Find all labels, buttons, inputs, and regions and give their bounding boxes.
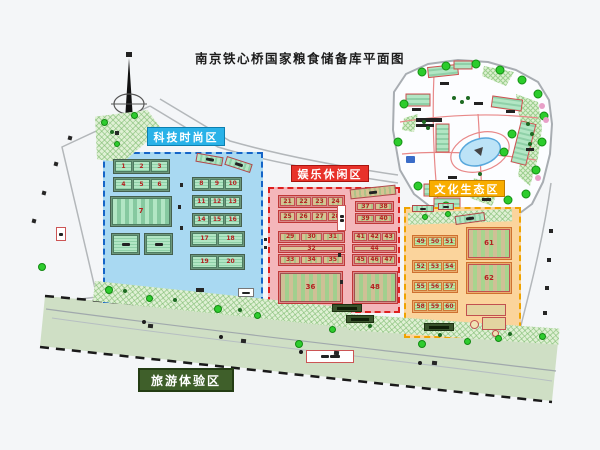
building: 20 (218, 256, 243, 268)
label-chip (238, 288, 254, 297)
building: 23 (312, 197, 327, 206)
bush-icon (368, 324, 372, 328)
tree-dot (418, 361, 422, 365)
building: 8 (194, 179, 209, 189)
tree-icon (295, 340, 303, 348)
building: 56 (428, 282, 441, 291)
building: 60 (443, 302, 456, 311)
building: 57 (443, 282, 456, 291)
building-row: 1 2 3 (113, 159, 170, 174)
building-row: 49 50 51 (412, 235, 458, 248)
building-row: 11 12 13 (192, 195, 242, 209)
tree-icon (146, 295, 153, 302)
label-chip (306, 350, 354, 363)
building-row: 58 59 60 (412, 300, 458, 313)
label-chip (337, 205, 346, 231)
tree-icon (114, 141, 120, 147)
building: 50 (428, 237, 441, 246)
tree-icon (214, 305, 222, 313)
building-row: 8 9 10 (192, 177, 242, 191)
building: 47 (382, 256, 395, 264)
building: 33 (280, 256, 300, 264)
building: 48 (354, 273, 396, 302)
building: 30 (301, 233, 321, 241)
label-chip (438, 203, 454, 210)
building-row: 29 30 31 (278, 231, 345, 243)
building: 13 (225, 197, 240, 207)
zone-label-culture: 文化生态区 (429, 180, 505, 197)
text-mark (547, 258, 551, 262)
building: 46 (368, 256, 381, 264)
building: 16 (225, 215, 240, 225)
tree-icon (38, 263, 46, 271)
building: 15 (210, 215, 225, 225)
tree-icon (464, 338, 471, 345)
building: 51 (443, 237, 456, 246)
zone-label-tech: 科技时尚区 (147, 127, 225, 146)
building-row: 17 18 (190, 231, 245, 247)
label-chip (424, 323, 454, 331)
building-row: 52 53 54 (412, 260, 458, 273)
building-row: 21 22 23 24 (278, 195, 345, 208)
building-large: 36 (278, 271, 343, 304)
building: 38 (375, 203, 392, 210)
building: 54 (443, 262, 456, 271)
label-chip (346, 315, 374, 323)
building: 6 (151, 179, 168, 190)
blue-mark (406, 156, 415, 163)
building (113, 235, 138, 253)
text-mark (180, 226, 183, 230)
building-row: 37 38 (355, 201, 394, 212)
text-mark (334, 351, 339, 356)
building: 2 (133, 161, 150, 172)
tree-icon (254, 312, 261, 319)
tree-dot (299, 350, 303, 354)
building-row: 33 34 35 (278, 254, 345, 266)
building-row: 45 46 47 (352, 254, 397, 266)
zone-label-entertainment: 娱乐休闲区 (291, 165, 369, 182)
building: 10 (225, 179, 240, 189)
text-mark (432, 361, 437, 366)
tree-icon (418, 340, 426, 348)
text-mark (148, 324, 153, 329)
building-round (470, 320, 479, 329)
building-unlabeled (111, 233, 140, 255)
building: 44 (354, 246, 395, 251)
building (466, 304, 506, 316)
building: 37 (357, 203, 374, 210)
building: 42 (368, 233, 381, 241)
building-large: 61 (466, 227, 512, 260)
bush-icon (438, 333, 442, 337)
tree-icon (495, 335, 502, 342)
bush-icon (123, 289, 127, 293)
bush-icon (238, 308, 242, 312)
building: 61 (468, 229, 510, 258)
building: 14 (194, 215, 209, 225)
building: 35 (323, 256, 343, 264)
tree-icon (131, 112, 138, 119)
building-large: 62 (466, 262, 512, 294)
text-mark (545, 286, 549, 290)
label-chip (412, 205, 434, 212)
building: 1 (115, 161, 132, 172)
building: 34 (301, 256, 321, 264)
building-row: 55 56 57 (412, 280, 458, 293)
zone-label-tourism: 旅游体验区 (138, 368, 234, 392)
text-mark (549, 229, 553, 233)
building-unlabeled (144, 233, 173, 255)
building: 17 (192, 233, 217, 245)
bush-icon (508, 332, 512, 336)
text-mark (178, 205, 181, 209)
tree-icon (329, 326, 336, 333)
building-row: 39 40 (355, 213, 394, 224)
building: 59 (428, 302, 441, 311)
bush-icon (173, 298, 177, 302)
building: 4 (115, 179, 132, 190)
building: 29 (280, 233, 300, 241)
building: 12 (210, 197, 225, 207)
building: 22 (296, 197, 311, 206)
building-row: 19 20 (190, 254, 245, 270)
bush-icon (110, 130, 114, 134)
building: 26 (296, 212, 311, 221)
building: 5 (133, 179, 150, 190)
building (482, 317, 506, 330)
building: 25 (280, 212, 295, 221)
building: 53 (428, 262, 441, 271)
zone-tech (103, 152, 263, 303)
text-mark (180, 183, 183, 187)
building: 40 (375, 215, 392, 222)
building: 62 (468, 264, 510, 292)
building: 55 (414, 282, 427, 291)
text-mark (196, 288, 204, 292)
building (146, 235, 171, 253)
site-plan: 1 2 3 4 5 6 7 8 9 10 11 12 13 14 15 16 1… (0, 0, 600, 450)
building-row: 4 5 6 (113, 177, 170, 192)
building: 21 (280, 197, 295, 206)
building: 58 (414, 302, 427, 311)
text-mark (264, 238, 267, 241)
tree-icon (445, 211, 451, 217)
building: 7 (112, 198, 170, 225)
building: 52 (414, 262, 427, 271)
building: 43 (382, 233, 395, 241)
label-chip (332, 304, 362, 312)
text-mark (241, 339, 246, 344)
building: 36 (280, 273, 341, 302)
building-large: 48 (352, 271, 398, 304)
text-mark (340, 280, 343, 284)
label-chip (56, 227, 66, 241)
building-row: 32 (278, 244, 345, 253)
building: 11 (194, 197, 209, 207)
tree-icon (422, 214, 428, 220)
building: 49 (414, 237, 427, 246)
building-large: 7 (110, 196, 172, 227)
text-mark (543, 311, 547, 315)
building-row: 41 42 43 (352, 231, 397, 243)
building: 31 (323, 233, 343, 241)
tree-icon (101, 119, 108, 126)
building: 19 (192, 256, 217, 268)
building-row: 25 26 27 28 (278, 210, 345, 223)
text-mark (115, 131, 119, 135)
page-title: 南京铁心桥国家粮食储备库平面图 (0, 48, 600, 67)
building: 41 (354, 233, 367, 241)
text-mark (338, 253, 341, 257)
tree-dot (219, 335, 223, 339)
building: 27 (312, 212, 327, 221)
building: 39 (357, 215, 374, 222)
tree-icon (105, 286, 113, 294)
building: 3 (151, 161, 168, 172)
building: 45 (354, 256, 367, 264)
text-mark (264, 246, 267, 249)
building-row: 14 15 16 (192, 213, 242, 227)
tree-dot (142, 320, 146, 324)
building-row: 44 (352, 244, 397, 253)
building: 32 (280, 246, 343, 251)
tree-icon (539, 333, 546, 340)
building: 18 (218, 233, 243, 245)
building: 9 (210, 179, 225, 189)
